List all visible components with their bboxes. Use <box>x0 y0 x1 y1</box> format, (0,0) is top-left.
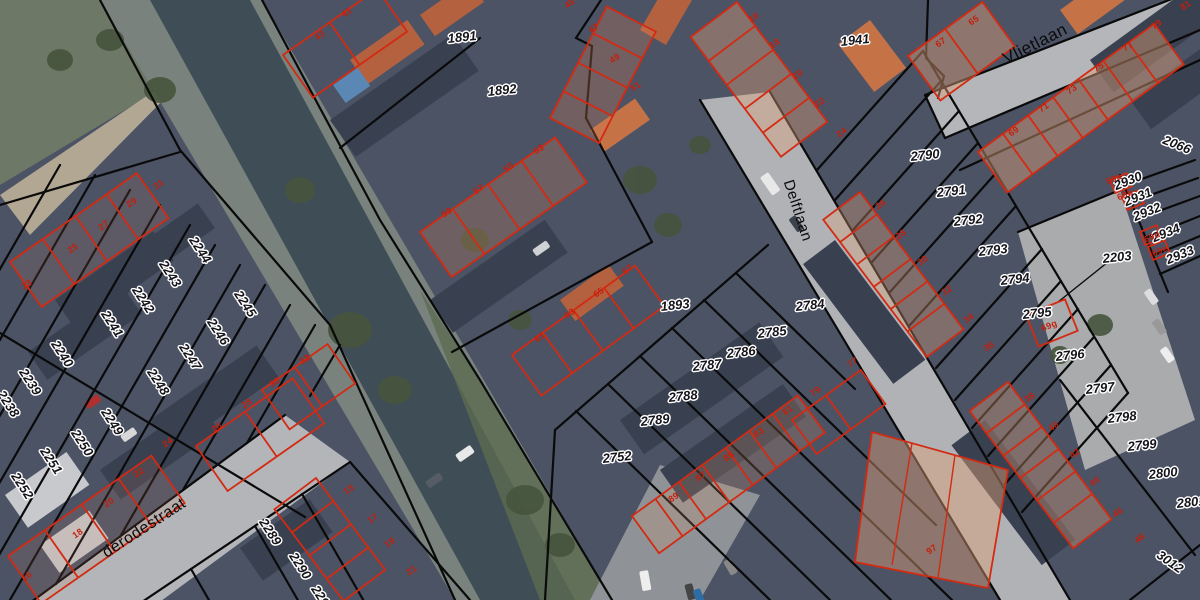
map-canvas[interactable]: 2238223922402241224222432244224522462247… <box>0 0 1200 600</box>
aerial-imagery <box>0 0 1200 600</box>
